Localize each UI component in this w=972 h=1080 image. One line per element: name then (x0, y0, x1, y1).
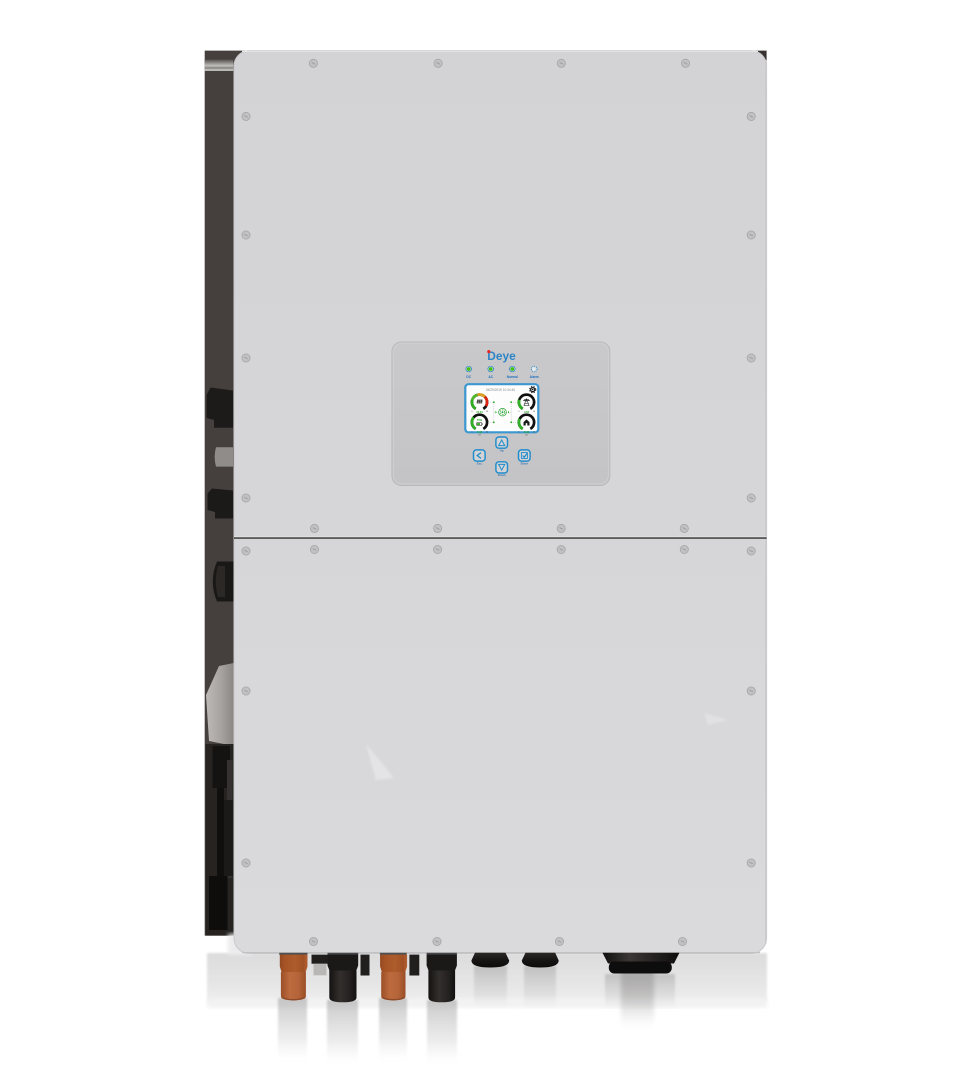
svg-text:12.34: 12.34 (476, 410, 483, 414)
svg-text:0: 0 (518, 411, 519, 413)
svg-text:75%: 75% (477, 418, 483, 422)
svg-text:Alarm: Alarm (530, 375, 539, 379)
svg-text:8.43: 8.43 (524, 430, 530, 434)
svg-text:Down: Down (498, 473, 506, 477)
svg-text:0.46: 0.46 (477, 430, 483, 434)
svg-text:Deye: Deye (487, 349, 516, 363)
svg-text:4.62: 4.62 (524, 410, 530, 414)
svg-text:0: 0 (471, 411, 472, 413)
svg-text:05/29/2019 10:34:40: 05/29/2019 10:34:40 (486, 388, 515, 392)
svg-text:Enter: Enter (521, 461, 529, 465)
svg-text:Up: Up (500, 448, 504, 452)
svg-text:kW: kW (525, 435, 528, 437)
svg-text:50: 50 (486, 411, 488, 413)
svg-text:50: 50 (533, 431, 535, 433)
svg-text:50: 50 (486, 431, 488, 433)
svg-text:0: 0 (471, 431, 472, 433)
svg-text:Esc: Esc (477, 461, 483, 465)
svg-text:DC: DC (466, 375, 471, 379)
svg-text:kW: kW (478, 435, 481, 437)
svg-text:AC: AC (488, 375, 493, 379)
svg-text:50: 50 (533, 411, 535, 413)
svg-text:0: 0 (518, 431, 519, 433)
svg-text:Normal: Normal (507, 375, 518, 379)
